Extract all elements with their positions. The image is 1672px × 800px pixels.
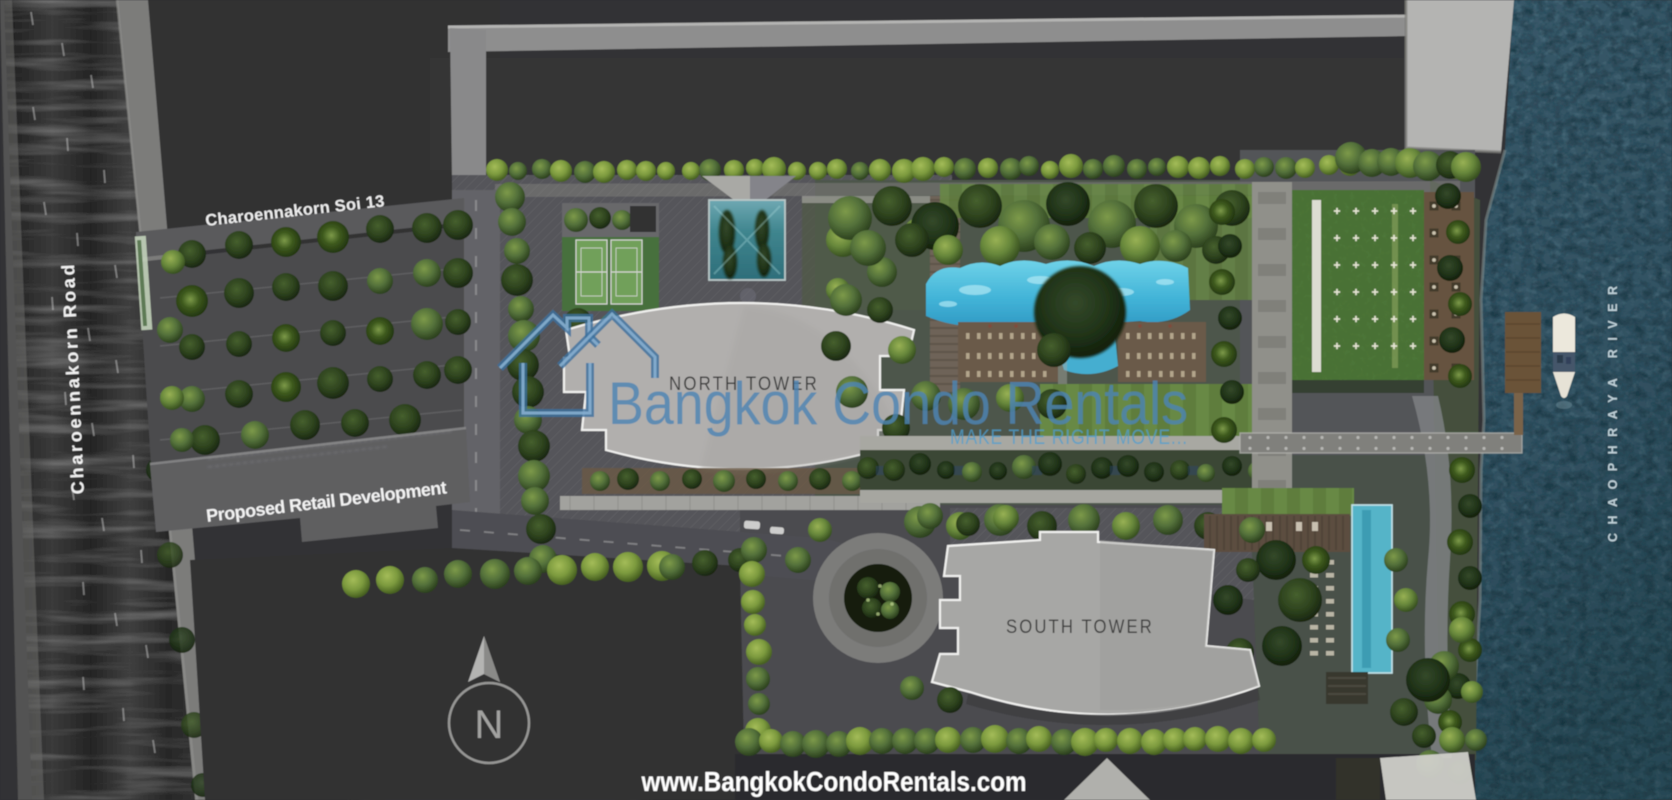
svg-text:MAKE THE RIGHT MOVE...: MAKE THE RIGHT MOVE...	[950, 426, 1188, 449]
svg-text:CHAOPHRAYA RIVER: CHAOPHRAYA RIVER	[1606, 277, 1620, 542]
svg-text:N: N	[475, 703, 504, 747]
svg-text:www.BangkokCondoRentals.com: www.BangkokCondoRentals.com	[641, 766, 1027, 797]
svg-text:SOUTH TOWER: SOUTH TOWER	[1006, 616, 1154, 638]
